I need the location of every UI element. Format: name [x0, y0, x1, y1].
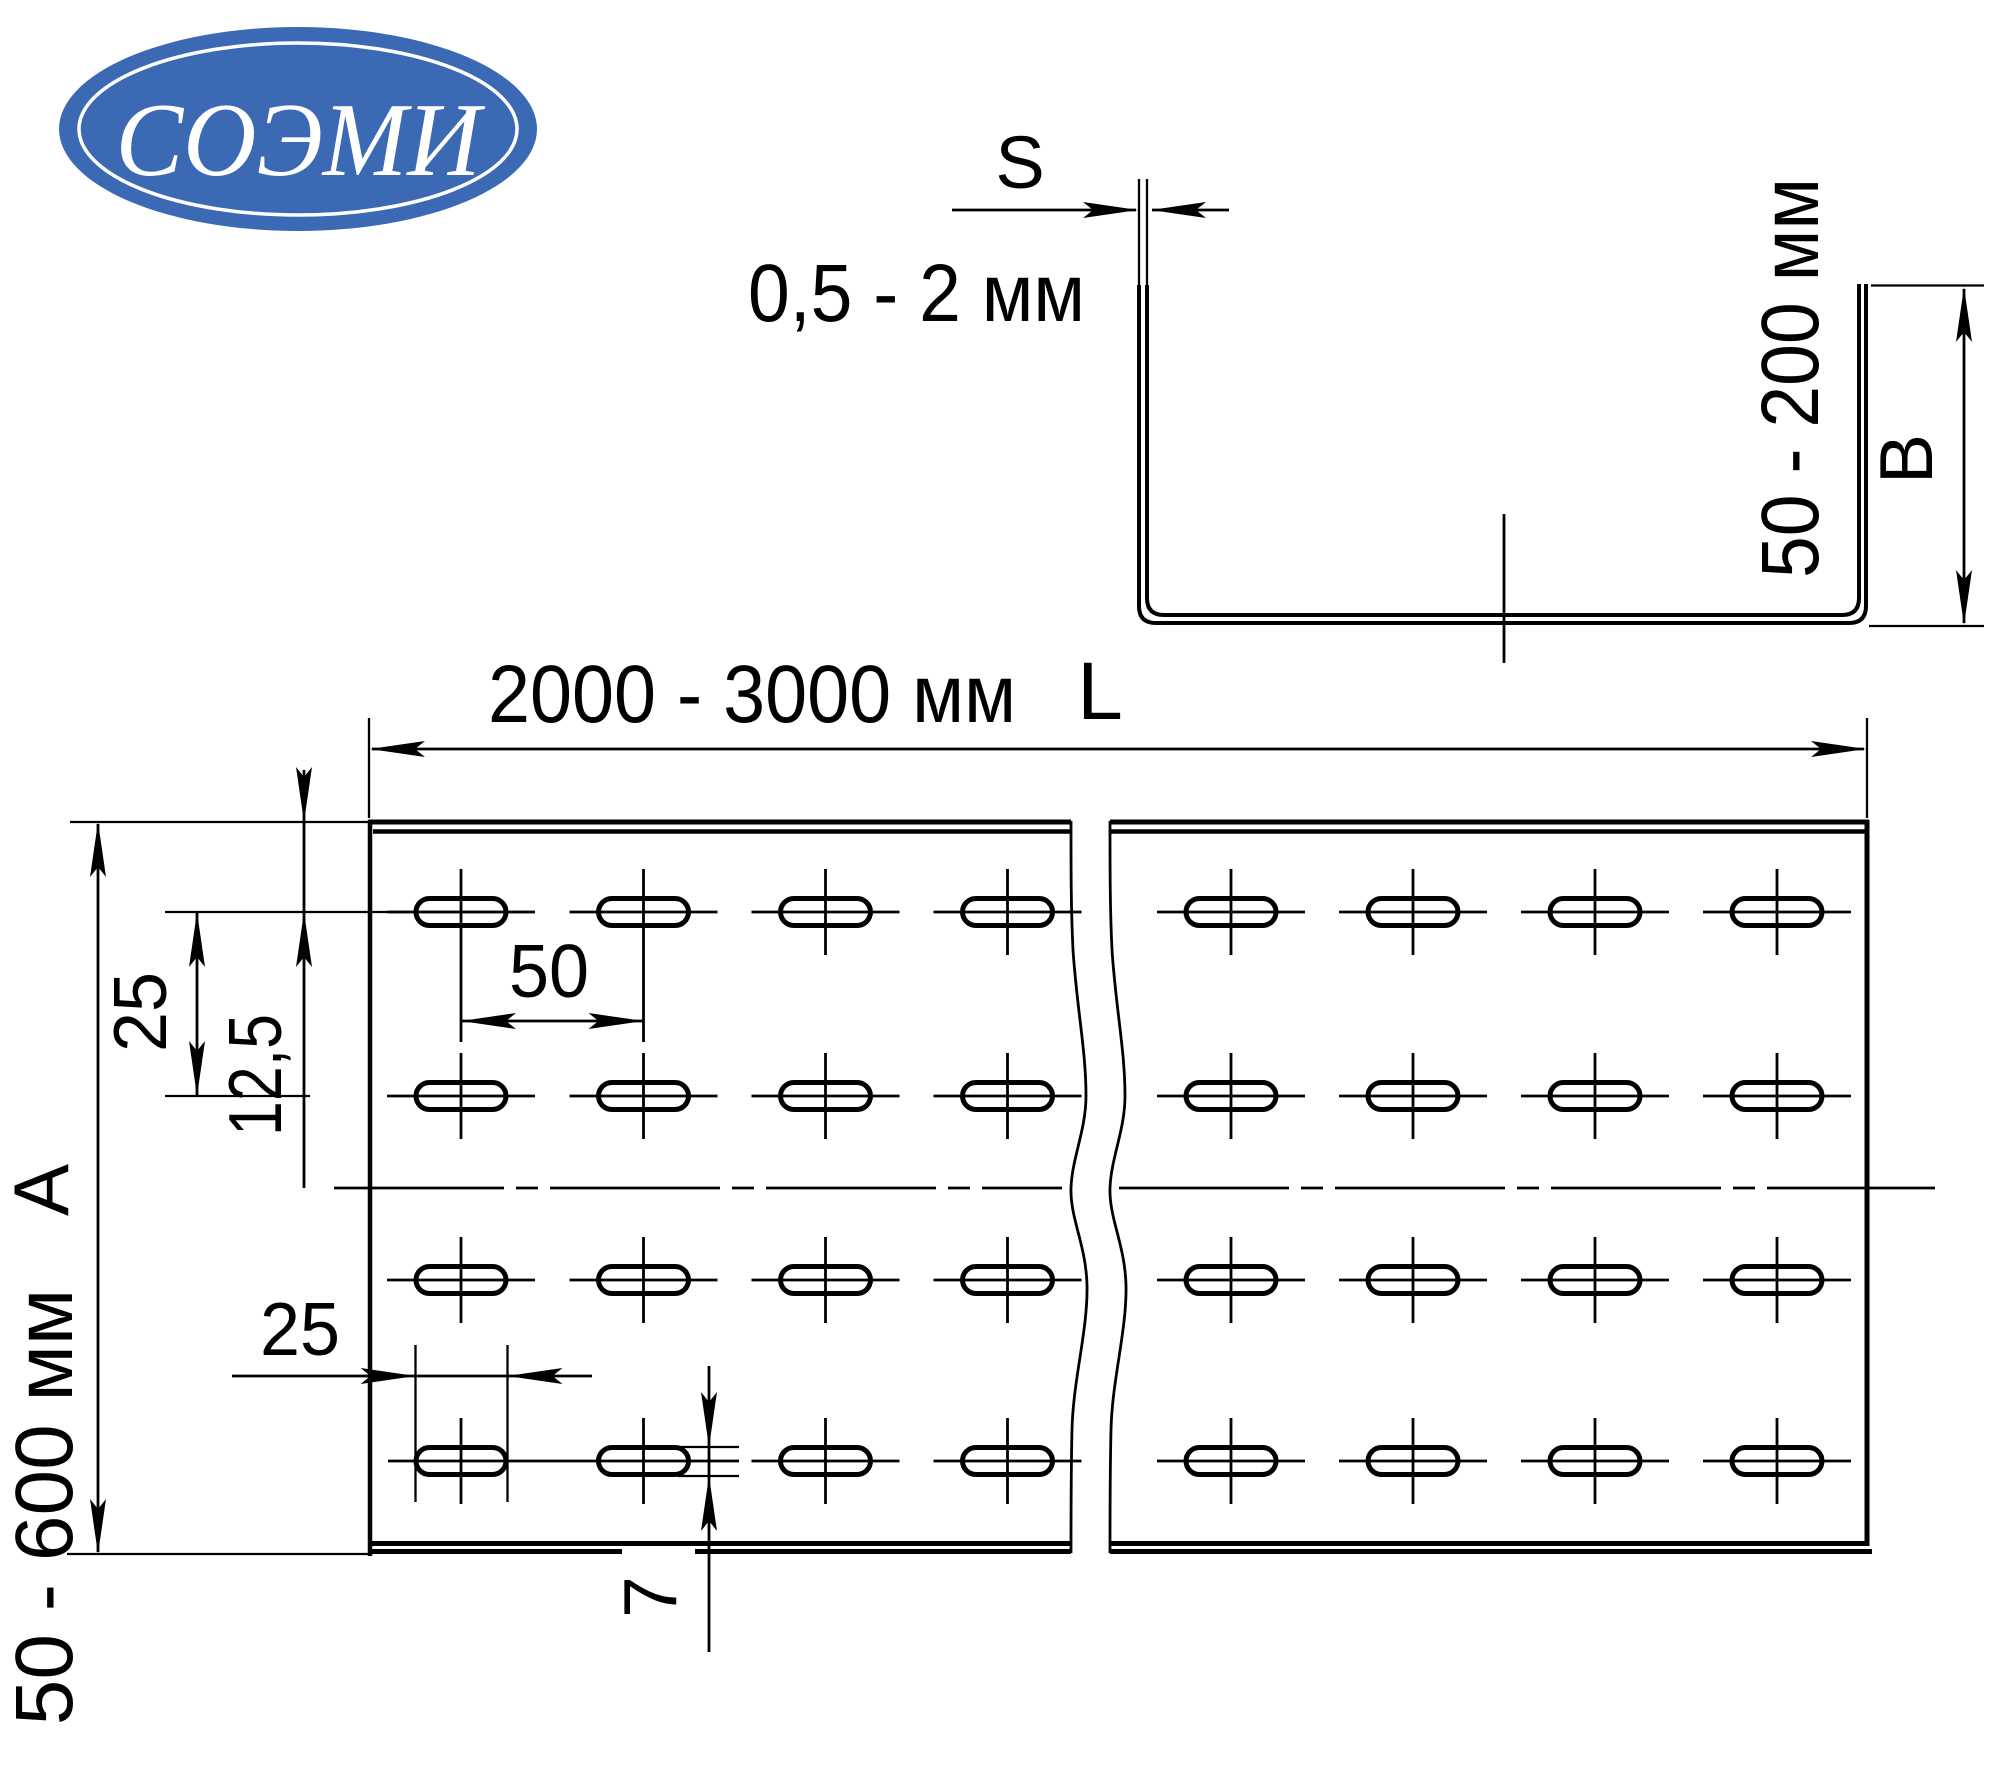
- svg-text:L: L: [1077, 646, 1123, 737]
- svg-text:12,5: 12,5: [213, 1014, 297, 1136]
- svg-text:0,5 - 2 мм: 0,5 - 2 мм: [748, 248, 1085, 339]
- svg-text:А: А: [0, 1164, 85, 1216]
- svg-text:25: 25: [260, 1287, 340, 1371]
- svg-text:СОЭМИ: СОЭМИ: [116, 81, 486, 198]
- svg-text:S: S: [995, 121, 1044, 204]
- svg-text:50 - 200 мм: 50 - 200 мм: [1745, 178, 1836, 578]
- svg-text:B: B: [1864, 434, 1948, 484]
- svg-text:50 - 600 мм: 50 - 600 мм: [0, 1289, 90, 1725]
- svg-text:50: 50: [509, 929, 589, 1013]
- svg-text:2000 - 3000 мм: 2000 - 3000 мм: [488, 649, 1016, 740]
- svg-text:7: 7: [608, 1576, 692, 1618]
- svg-text:25: 25: [98, 972, 182, 1052]
